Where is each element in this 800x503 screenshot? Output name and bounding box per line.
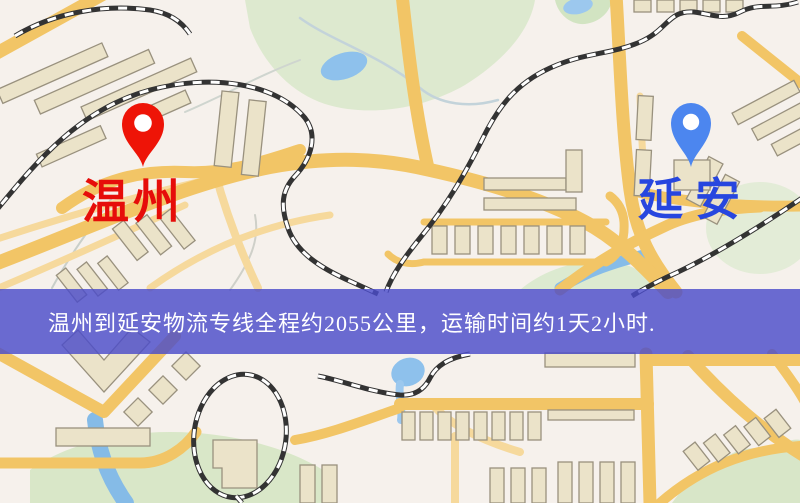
destination-city-label: 延安 — [638, 177, 752, 222]
route-info-banner: 温州到延安物流专线全程约2055公里，运输时间约1天2小时. — [0, 289, 800, 354]
map-graphic: 温州 延安 温州到延安物流专线全程约2055公里，运输时间约1天2小时. — [0, 0, 800, 503]
map-canvas — [0, 0, 800, 503]
origin-city-label: 温州 — [82, 178, 184, 225]
route-info-text: 温州到延安物流专线全程约2055公里，运输时间约1天2小时. — [48, 306, 656, 338]
destination-marker-pin[interactable] — [668, 103, 714, 169]
origin-marker-pin[interactable] — [118, 103, 168, 169]
